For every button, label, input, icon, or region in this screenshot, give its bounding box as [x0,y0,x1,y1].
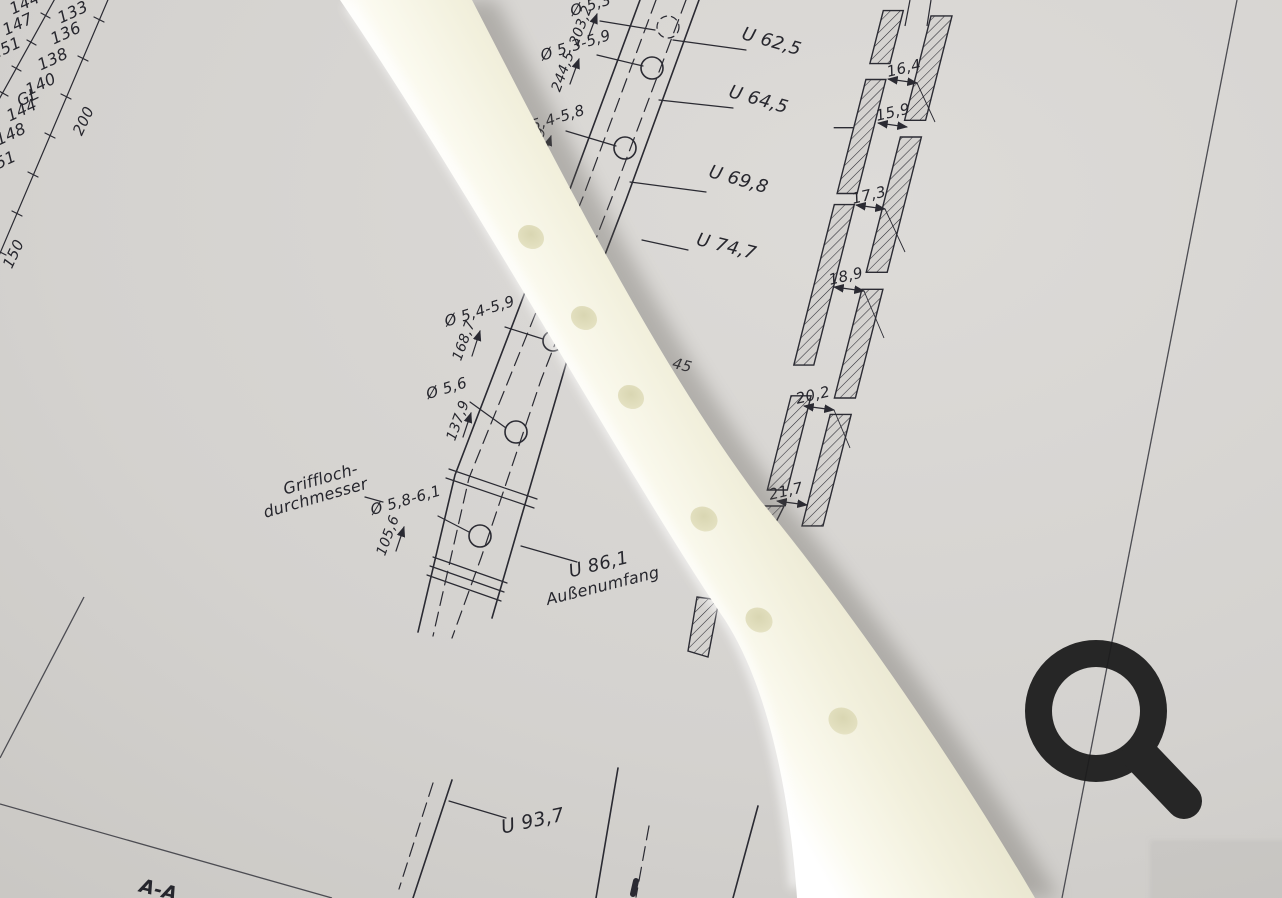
photo-of-technical-drawing: A-A 144 133 147 136 151 138 3 140 GL 144… [0,0,1282,898]
